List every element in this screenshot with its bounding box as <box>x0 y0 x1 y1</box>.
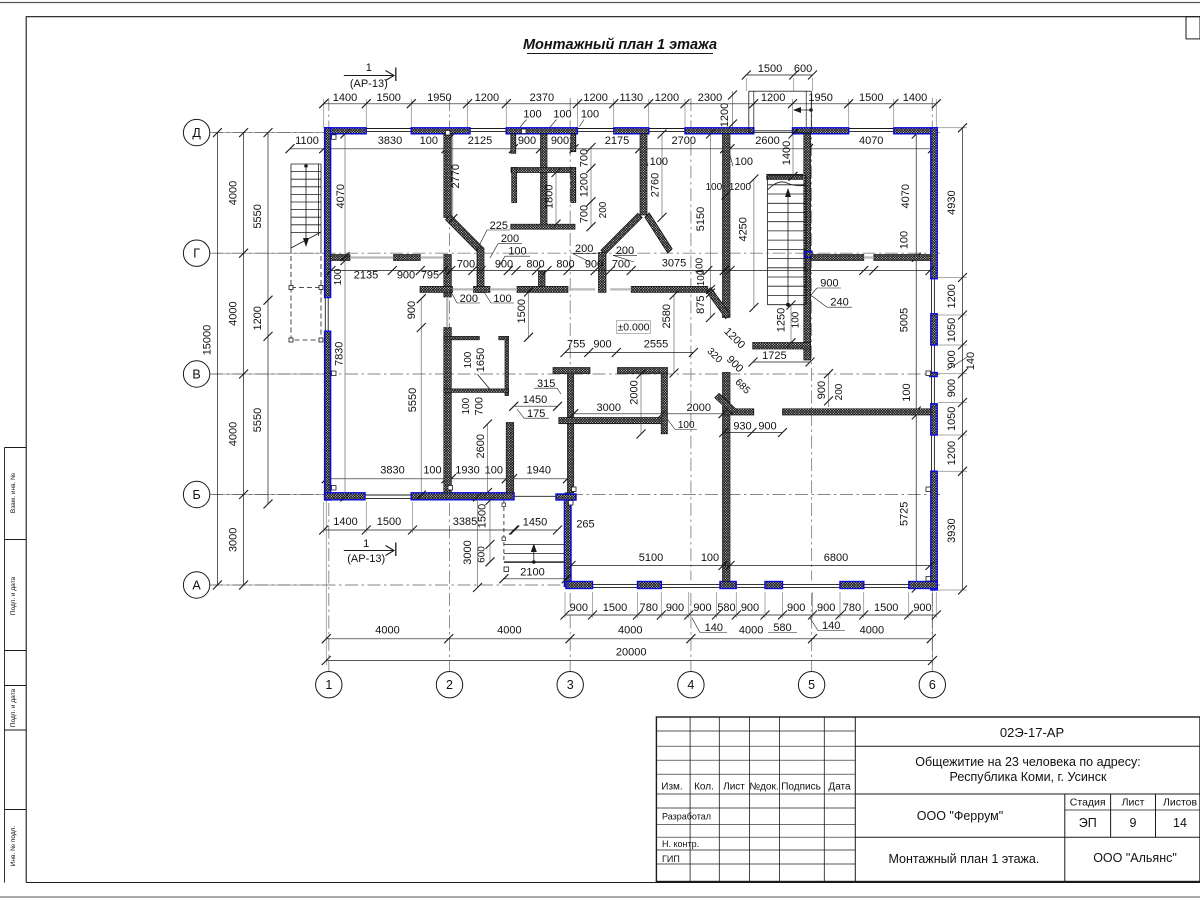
svg-text:7830: 7830 <box>334 342 346 366</box>
svg-text:1: 1 <box>366 62 372 74</box>
svg-text:4000: 4000 <box>497 625 521 637</box>
svg-text:900: 900 <box>585 259 603 271</box>
svg-text:5150: 5150 <box>695 207 707 231</box>
svg-text:4250: 4250 <box>738 217 750 241</box>
svg-text:1725: 1725 <box>762 350 786 362</box>
svg-text:100: 100 <box>650 156 668 168</box>
svg-text:1400: 1400 <box>333 516 357 528</box>
svg-text:Г: Г <box>193 247 200 261</box>
svg-text:1100: 1100 <box>295 135 319 147</box>
svg-text:100: 100 <box>791 311 802 328</box>
svg-text:900: 900 <box>551 135 569 147</box>
svg-text:1400: 1400 <box>903 92 927 104</box>
svg-text:700: 700 <box>612 259 630 271</box>
svg-text:1450: 1450 <box>523 394 547 406</box>
svg-text:930: 930 <box>733 420 751 432</box>
svg-text:1200: 1200 <box>729 182 752 193</box>
svg-text:900: 900 <box>593 339 611 351</box>
svg-text:(АР-13): (АР-13) <box>350 78 388 90</box>
svg-text:1200: 1200 <box>655 92 679 104</box>
svg-text:9: 9 <box>1130 816 1137 830</box>
svg-text:1500: 1500 <box>859 92 883 104</box>
svg-text:900: 900 <box>816 381 828 399</box>
svg-text:1: 1 <box>325 678 332 692</box>
svg-text:700: 700 <box>579 205 591 223</box>
svg-text:3000: 3000 <box>597 402 621 414</box>
svg-text:4070: 4070 <box>859 135 883 147</box>
svg-text:900: 900 <box>495 259 513 271</box>
svg-text:900: 900 <box>406 301 418 319</box>
svg-text:4000: 4000 <box>228 301 240 325</box>
svg-text:5100: 5100 <box>639 552 663 564</box>
svg-text:800: 800 <box>556 259 574 271</box>
svg-text:1200: 1200 <box>946 284 958 308</box>
svg-text:2700: 2700 <box>672 135 696 147</box>
svg-text:1200: 1200 <box>252 306 264 330</box>
svg-text:5005: 5005 <box>899 308 911 332</box>
svg-text:5550: 5550 <box>407 388 419 412</box>
svg-text:3000: 3000 <box>228 528 240 552</box>
svg-text:4070: 4070 <box>335 184 347 208</box>
svg-text:4000: 4000 <box>860 625 884 637</box>
svg-text:ЭП: ЭП <box>1079 816 1097 830</box>
svg-text:700: 700 <box>474 397 486 415</box>
svg-text:2: 2 <box>446 678 453 692</box>
svg-text:4930: 4930 <box>946 190 958 214</box>
svg-text:600: 600 <box>477 546 488 563</box>
svg-text:1650: 1650 <box>475 348 487 372</box>
svg-text:800: 800 <box>526 259 544 271</box>
svg-text:900: 900 <box>787 602 805 614</box>
svg-text:4000: 4000 <box>228 422 240 446</box>
svg-text:1940: 1940 <box>527 465 551 477</box>
svg-text:2100: 2100 <box>520 567 544 579</box>
svg-text:Монтажный план 1 этажа: Монтажный план 1 этажа <box>523 37 717 53</box>
svg-text:Стадия: Стадия <box>1070 797 1106 809</box>
svg-text:1050: 1050 <box>946 318 958 342</box>
svg-text:ООО "Альянс": ООО "Альянс" <box>1093 851 1177 865</box>
svg-text:Изм.: Изм. <box>661 782 682 793</box>
svg-text:1200: 1200 <box>583 92 607 104</box>
svg-text:4: 4 <box>687 678 694 692</box>
svg-text:265: 265 <box>576 518 594 530</box>
svg-text:2760: 2760 <box>649 173 661 197</box>
svg-text:Дата: Дата <box>828 782 851 793</box>
svg-text:2125: 2125 <box>468 135 492 147</box>
svg-text:Взам. инв. №: Взам. инв. № <box>10 473 17 513</box>
svg-text:Н. контр.: Н. контр. <box>662 839 699 849</box>
svg-text:4000: 4000 <box>375 625 399 637</box>
svg-text:1200: 1200 <box>946 441 958 465</box>
svg-text:ООО "Феррум": ООО "Феррум" <box>917 809 1003 823</box>
svg-text:Подп. и дата: Подп. и дата <box>10 576 17 615</box>
svg-text:2580: 2580 <box>661 304 673 328</box>
svg-text:±0.000: ±0.000 <box>617 322 649 334</box>
svg-text:100: 100 <box>420 135 438 147</box>
svg-text:1250: 1250 <box>776 308 788 332</box>
svg-text:1500: 1500 <box>874 602 898 614</box>
svg-text:755: 755 <box>567 339 585 351</box>
svg-text:900: 900 <box>570 602 588 614</box>
svg-text:1500: 1500 <box>516 299 528 323</box>
svg-text:2135: 2135 <box>354 269 378 281</box>
svg-text:580: 580 <box>717 602 735 614</box>
svg-text:Разработал: Разработал <box>662 812 711 822</box>
svg-text:Д: Д <box>192 126 201 140</box>
svg-text:100: 100 <box>735 156 753 168</box>
svg-text:Монтажный план 1 этажа.: Монтажный план 1 этажа. <box>888 852 1039 866</box>
svg-text:2770: 2770 <box>450 164 462 188</box>
svg-text:900: 900 <box>913 602 931 614</box>
svg-text:Б: Б <box>192 488 200 502</box>
svg-text:15000: 15000 <box>201 325 213 356</box>
svg-text:1950: 1950 <box>427 92 451 104</box>
svg-text:2370: 2370 <box>530 92 554 104</box>
svg-text:3075: 3075 <box>662 258 686 270</box>
svg-text:5: 5 <box>808 678 815 692</box>
svg-text:2000: 2000 <box>687 402 711 414</box>
svg-text:4000: 4000 <box>618 625 642 637</box>
svg-text:2600: 2600 <box>475 434 487 458</box>
svg-text:2600: 2600 <box>755 135 779 147</box>
svg-text:3385: 3385 <box>453 516 477 528</box>
svg-text:1500: 1500 <box>376 92 400 104</box>
svg-text:200: 200 <box>616 245 634 257</box>
svg-text:3000: 3000 <box>462 540 474 564</box>
svg-text:700: 700 <box>579 149 591 167</box>
svg-text:В: В <box>192 368 200 382</box>
svg-text:14: 14 <box>1173 816 1187 830</box>
svg-text:100: 100 <box>899 231 911 249</box>
svg-text:1450: 1450 <box>523 517 547 529</box>
svg-text:5550: 5550 <box>252 204 264 228</box>
svg-text:780: 780 <box>843 602 861 614</box>
svg-text:1500: 1500 <box>603 602 627 614</box>
svg-text:900: 900 <box>741 602 759 614</box>
svg-text:20000: 20000 <box>616 646 647 658</box>
svg-text:4070: 4070 <box>900 184 912 208</box>
svg-text:3: 3 <box>567 678 574 692</box>
svg-text:100: 100 <box>705 182 722 193</box>
svg-text:1200: 1200 <box>579 173 591 197</box>
svg-text:2175: 2175 <box>605 135 629 147</box>
svg-text:900: 900 <box>397 269 415 281</box>
svg-text:100: 100 <box>463 351 474 368</box>
svg-text:100: 100 <box>901 383 913 401</box>
svg-text:900: 900 <box>946 379 958 397</box>
svg-text:Республика Коми, г. Усинск: Республика Коми, г. Усинск <box>950 770 1107 784</box>
svg-text:6: 6 <box>929 678 936 692</box>
svg-text:Подп. и дата: Подп. и дата <box>10 688 17 727</box>
svg-text:Подпись: Подпись <box>781 782 821 793</box>
svg-text:5550: 5550 <box>252 408 264 432</box>
svg-text:795: 795 <box>421 269 439 281</box>
svg-text:1050: 1050 <box>946 407 958 431</box>
svg-text:3830: 3830 <box>380 465 404 477</box>
svg-text:Инв. № подл.: Инв. № подл. <box>10 826 17 867</box>
svg-text:А: А <box>192 579 201 593</box>
svg-text:900: 900 <box>518 135 536 147</box>
svg-text:2000: 2000 <box>629 380 641 404</box>
svg-text:100: 100 <box>701 552 719 564</box>
svg-text:900: 900 <box>693 602 711 614</box>
svg-text:200: 200 <box>834 383 845 400</box>
svg-text:3830: 3830 <box>378 135 402 147</box>
svg-text:02Э-17-АР: 02Э-17-АР <box>1000 725 1064 740</box>
svg-text:Общежитие на 23 человека по ад: Общежитие на 23 человека по адресу: <box>915 755 1140 769</box>
svg-text:100: 100 <box>695 257 706 274</box>
svg-text:3930: 3930 <box>946 518 958 542</box>
svg-text:№док.: №док. <box>749 782 778 793</box>
svg-text:900: 900 <box>817 602 835 614</box>
svg-text:100: 100 <box>423 465 441 477</box>
svg-text:6800: 6800 <box>824 552 848 564</box>
svg-text:2555: 2555 <box>644 339 668 351</box>
svg-text:100: 100 <box>523 109 541 121</box>
svg-text:1: 1 <box>363 538 369 550</box>
svg-text:600: 600 <box>794 63 812 75</box>
svg-text:1500: 1500 <box>758 63 782 75</box>
svg-text:1930: 1930 <box>455 465 479 477</box>
svg-text:1500: 1500 <box>477 504 489 528</box>
svg-text:4000: 4000 <box>739 625 763 637</box>
svg-text:1200: 1200 <box>761 92 785 104</box>
svg-text:100: 100 <box>581 109 599 121</box>
svg-text:1200: 1200 <box>475 92 499 104</box>
svg-text:1200: 1200 <box>719 103 731 127</box>
svg-text:Лист: Лист <box>723 782 745 793</box>
svg-text:700: 700 <box>457 259 475 271</box>
svg-text:5725: 5725 <box>899 502 911 526</box>
svg-text:900: 900 <box>946 350 958 368</box>
svg-text:900: 900 <box>666 602 684 614</box>
svg-text:780: 780 <box>640 602 658 614</box>
svg-text:1400: 1400 <box>781 141 793 165</box>
svg-text:875: 875 <box>695 296 707 314</box>
svg-text:1800: 1800 <box>544 184 556 208</box>
svg-text:100: 100 <box>553 109 571 121</box>
svg-text:Кол.: Кол. <box>694 782 714 793</box>
svg-text:1130: 1130 <box>619 92 643 104</box>
svg-text:200: 200 <box>598 201 609 218</box>
svg-text:1500: 1500 <box>377 516 401 528</box>
svg-text:1950: 1950 <box>808 92 832 104</box>
svg-text:1400: 1400 <box>333 92 357 104</box>
svg-text:ГИП: ГИП <box>662 854 680 864</box>
svg-text:900: 900 <box>758 420 776 432</box>
svg-text:100: 100 <box>461 397 472 414</box>
svg-text:140: 140 <box>965 352 977 370</box>
svg-text:Листов: Листов <box>1163 797 1198 809</box>
svg-text:2300: 2300 <box>698 92 722 104</box>
svg-text:4000: 4000 <box>228 181 240 205</box>
svg-text:(АР-13): (АР-13) <box>347 553 385 565</box>
svg-text:Лист: Лист <box>1122 797 1145 809</box>
